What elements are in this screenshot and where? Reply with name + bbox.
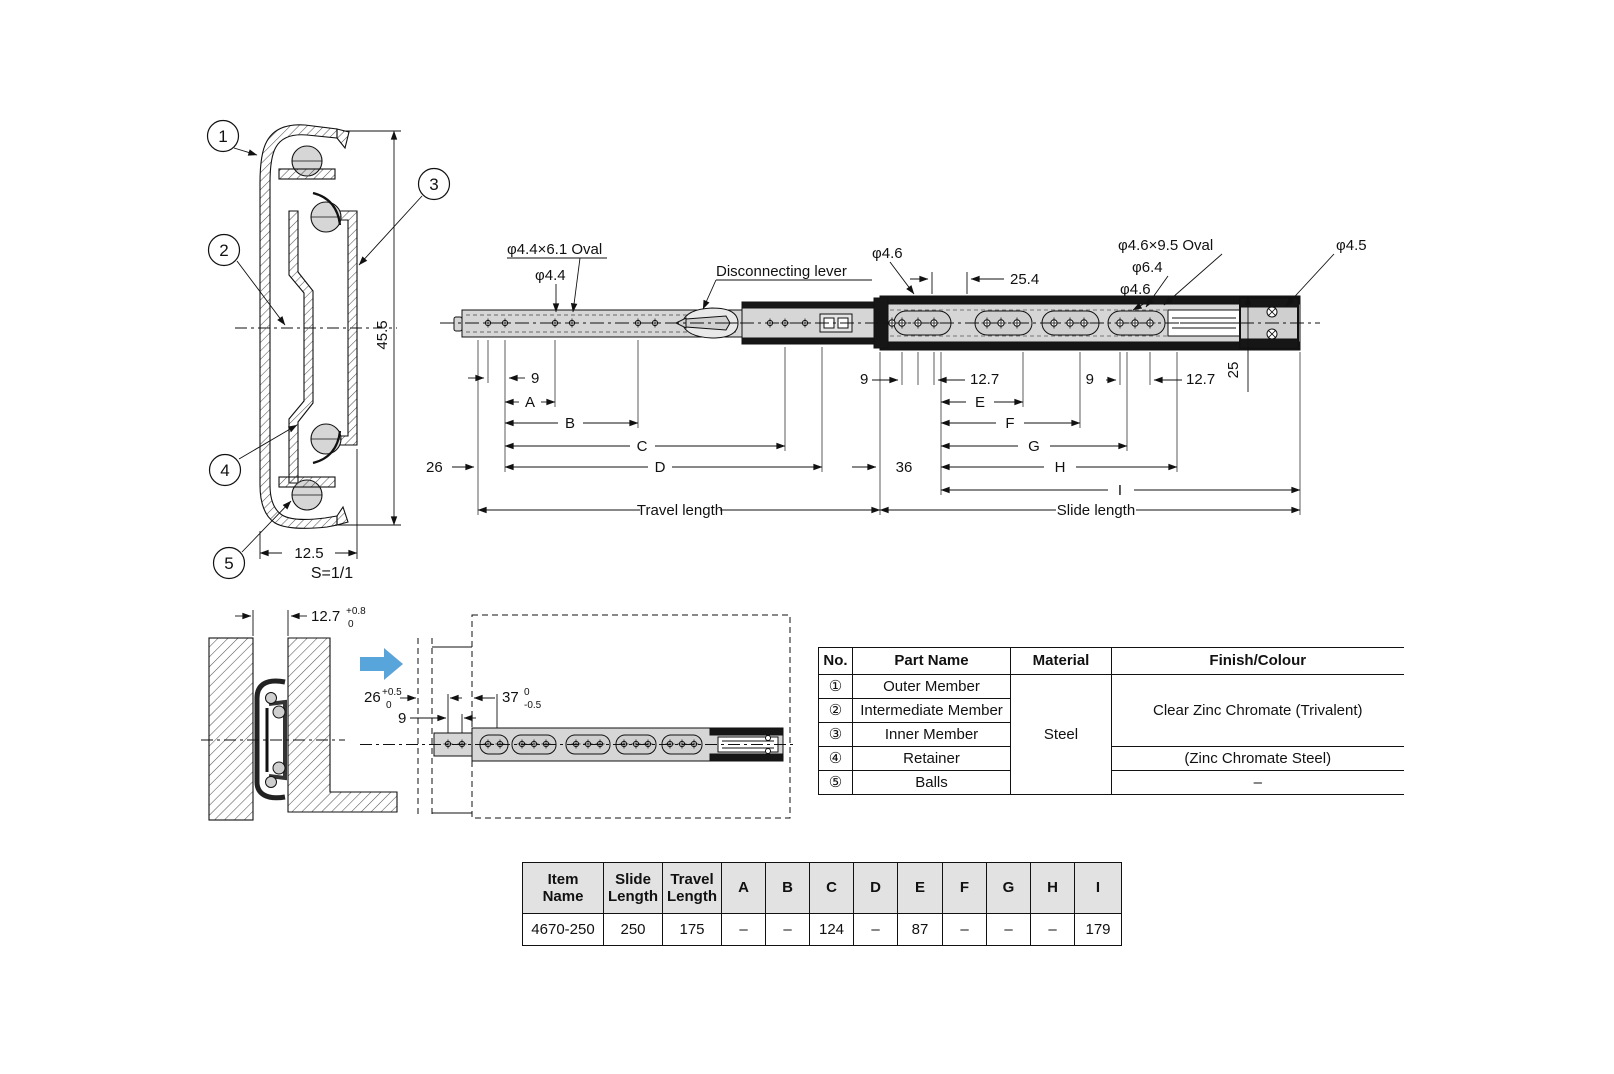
part-no: ④ (819, 747, 853, 771)
dim-c: C (637, 438, 648, 455)
table-row: 4670-250 250 175 – – 124 – 87 – – – 179 (523, 914, 1122, 946)
side-view-extended: φ4.4×6.1 Oval φ4.4 Disconnecting lever φ… (420, 210, 1380, 530)
depth-dim-label: 26 (364, 689, 381, 706)
length-dim-label: 37 (502, 689, 519, 706)
parts-table: No. Part Name Material Finish/Colour ① O… (818, 647, 1404, 795)
oval-left-label: φ4.4×6.1 Oval (507, 241, 602, 258)
g-cell: – (987, 914, 1031, 946)
dia-end-label: φ4.5 (1336, 237, 1367, 254)
dia-mid-label: φ4.6 (872, 245, 903, 262)
balloon-2-label: 2 (219, 241, 228, 260)
col-header-no: No. (819, 648, 853, 675)
f-cell: – (943, 914, 987, 946)
dim-h: H (1055, 459, 1066, 476)
balloon-4-label: 4 (220, 461, 229, 480)
dimension-table: Item Name Slide Length Travel Length A B… (522, 862, 1122, 946)
dim-9-right1: 9 (860, 371, 868, 388)
col-header-part-name: Part Name (853, 648, 1011, 675)
compressed-dimensions (400, 694, 497, 733)
compressed-view: 26 +0.5 0 9 37 0 -0.5 (340, 585, 805, 825)
i-cell: 179 (1075, 914, 1122, 946)
col-header-slide-length: Slide Length (604, 863, 663, 914)
part-name: Retainer (853, 747, 1011, 771)
dim-12-7-right1: 12.7 (970, 371, 999, 388)
dim-26: 26 (426, 459, 443, 476)
col-header-f: F (943, 863, 987, 914)
slide-length-cell: 250 (604, 914, 663, 946)
col-header-d: D (854, 863, 898, 914)
dim-i: I (1118, 482, 1122, 499)
dim-12-7-right2: 12.7 (1186, 371, 1215, 388)
oval-right-label: φ4.6×9.5 Oval (1118, 237, 1213, 254)
part-no: ② (819, 699, 853, 723)
part-no: ③ (819, 723, 853, 747)
depth-dim-minus: 0 (386, 700, 392, 711)
part-finish: – (1112, 771, 1404, 795)
col-header-i: I (1075, 863, 1122, 914)
part-name: Outer Member (853, 675, 1011, 699)
dimension-lines (452, 378, 1300, 510)
h-cell: – (1031, 914, 1075, 946)
balloon-3-label: 3 (429, 175, 438, 194)
b-cell: – (766, 914, 810, 946)
depth-dim-plus: +0.5 (382, 687, 402, 698)
intermediate-member-section (289, 211, 313, 483)
cabinet-wall-left (209, 638, 253, 820)
dim-b: B (565, 415, 575, 432)
col-header-g: G (987, 863, 1031, 914)
gap-dim-label: 12.7 (311, 608, 340, 625)
dim-e: E (975, 394, 985, 411)
col-header-finish: Finish/Colour (1112, 648, 1404, 675)
dim-travel-length: Travel length (637, 502, 723, 519)
col-header-material: Material (1011, 648, 1112, 675)
travel-length-cell: 175 (663, 914, 722, 946)
part-no: ⑤ (819, 771, 853, 795)
item-name-cell: 4670-250 (523, 914, 604, 946)
part-finish: Clear Zinc Chromate (Trivalent) (1112, 675, 1404, 747)
dia-left-label: φ4.4 (535, 267, 566, 284)
part-name: Inner Member (853, 723, 1011, 747)
pitch-25-4-dimension (910, 272, 1004, 294)
lever-label: Disconnecting lever (716, 263, 847, 280)
dim-9-left: 9 (531, 370, 539, 387)
a-cell: – (722, 914, 766, 946)
scale-note: S=1/1 (311, 565, 353, 582)
col-header-e: E (898, 863, 943, 914)
part-name: Balls (853, 771, 1011, 795)
height-dim-label: 45.5 (374, 320, 391, 349)
part-material: Steel (1011, 675, 1112, 795)
parts-table-header-row: No. Part Name Material Finish/Colour (819, 648, 1404, 675)
dim-g: G (1028, 438, 1040, 455)
dim-d: D (655, 459, 666, 476)
part-finish: (Zinc Chromate Steel) (1112, 747, 1404, 771)
e-cell: 87 (898, 914, 943, 946)
offset-9-label: 9 (398, 710, 406, 727)
extension-lines (478, 340, 1300, 515)
part-name: Intermediate Member (853, 699, 1011, 723)
col-header-b: B (766, 863, 810, 914)
col-header-h: H (1031, 863, 1075, 914)
cross-section-view: 1 2 3 4 5 45.5 12.5 (185, 95, 460, 590)
dim-36: 36 (896, 459, 913, 476)
dim-table-header-row: Item Name Slide Length Travel Length A B… (523, 863, 1122, 914)
balloon-1-label: 1 (218, 127, 227, 146)
gap-dimension (235, 610, 307, 636)
height-25-label: 25 (1225, 362, 1242, 379)
dim-f: F (1005, 415, 1014, 432)
dia-right-big-label: φ6.4 (1132, 259, 1163, 276)
col-header-c: C (810, 863, 854, 914)
balloon-callouts (208, 121, 450, 579)
c-cell: 124 (810, 914, 854, 946)
col-header-travel-length: Travel Length (663, 863, 722, 914)
table-row: ④ Retainer (Zinc Chromate Steel) (819, 747, 1404, 771)
dim-slide-length: Slide length (1057, 502, 1135, 519)
dia-right-label: φ4.6 (1120, 281, 1151, 298)
table-row: ⑤ Balls – (819, 771, 1404, 795)
d-cell: – (854, 914, 898, 946)
catalog-drawing-page: 1 2 3 4 5 45.5 12.5 (0, 0, 1614, 1074)
part-no: ① (819, 675, 853, 699)
col-header-a: A (722, 863, 766, 914)
length-dim-minus: -0.5 (524, 700, 542, 711)
detail-boundary (418, 615, 790, 818)
pitch-mid-label: 25.4 (1010, 271, 1039, 288)
col-header-item-name: Item Name (523, 863, 604, 914)
length-dim-plus: 0 (524, 687, 530, 698)
table-row: ① Outer Member Steel Clear Zinc Chromate… (819, 675, 1404, 699)
direction-arrow (360, 648, 403, 680)
dim-a: A (525, 394, 535, 411)
slide-section-mini (257, 681, 285, 798)
dim-9-right2: 9 (1086, 371, 1094, 388)
